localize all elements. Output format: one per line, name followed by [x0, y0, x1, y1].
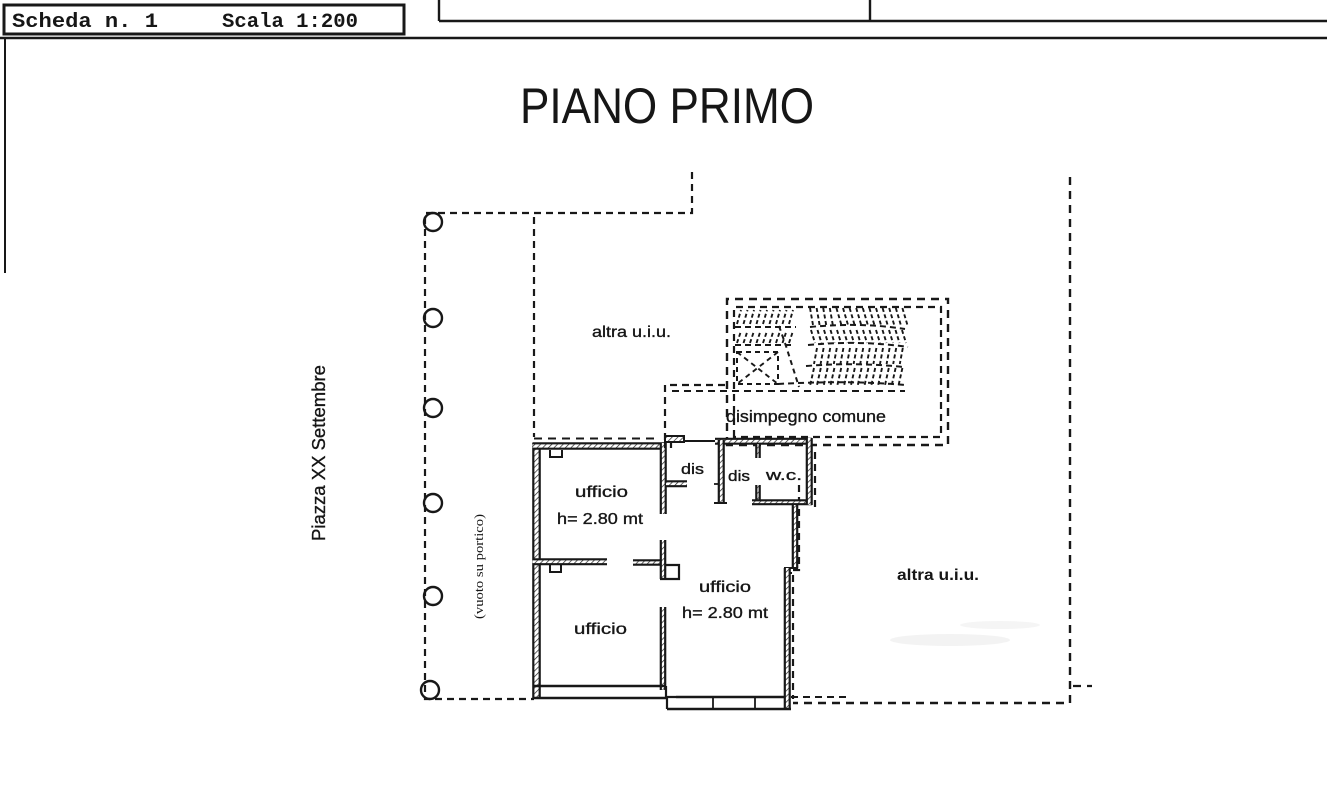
svg-text:altra u.i.u.: altra u.i.u. [897, 567, 979, 584]
svg-text:Scheda n. 1: Scheda n. 1 [12, 11, 158, 34]
svg-text:ufficio: ufficio [575, 484, 628, 501]
svg-text:altra u.i.u.: altra u.i.u. [592, 324, 671, 341]
svg-text:disimpegno comune: disimpegno comune [726, 408, 886, 426]
svg-text:h= 2.80 mt: h= 2.80 mt [682, 605, 769, 622]
svg-text:Piazza XX Settembre: Piazza XX Settembre [309, 365, 329, 541]
svg-text:Scala 1:200: Scala 1:200 [222, 11, 358, 34]
svg-text:dis: dis [681, 461, 704, 478]
svg-text:ufficio: ufficio [699, 579, 751, 596]
svg-text:PIANO PRIMO: PIANO PRIMO [520, 78, 814, 134]
svg-text:(vuoto su portico): (vuoto su portico) [471, 514, 486, 619]
svg-text:ufficio: ufficio [574, 621, 627, 638]
svg-text:dis: dis [728, 468, 750, 485]
svg-text:w.c.: w.c. [765, 467, 802, 484]
svg-text:h= 2.80 mt: h= 2.80 mt [557, 511, 644, 528]
